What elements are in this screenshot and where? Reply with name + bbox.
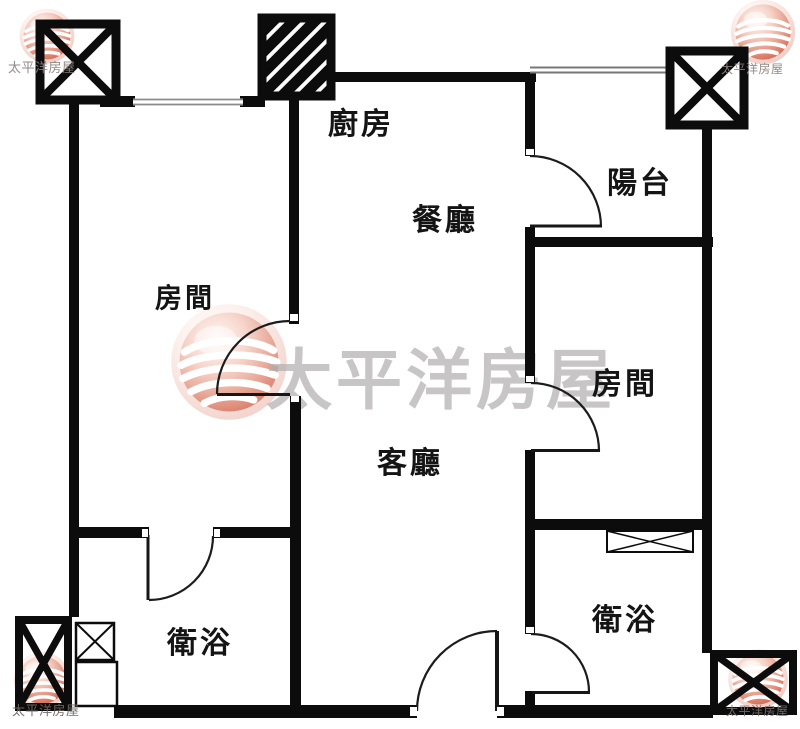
room-label-bathroom-left: 衛浴 <box>167 618 233 662</box>
room-label-dining: 餐廳 <box>412 195 478 239</box>
labels-layer: 廚房 陽台 餐廳 房間 房間 客廳 衛浴 衛浴 太平洋房屋 太平洋房屋 太平洋房… <box>0 0 800 729</box>
watermark-text-top-left: 太平洋房屋 <box>8 57 76 76</box>
room-label-living: 客廳 <box>377 438 443 482</box>
room-label-bedroom-left: 房間 <box>155 277 215 316</box>
watermark-text-bottom-left: 太平洋房屋 <box>12 700 80 719</box>
room-label-bedroom-right: 房間 <box>592 359 658 403</box>
watermark-text-top-right: 太平洋房屋 <box>721 60 784 77</box>
room-label-balcony: 陽台 <box>607 158 673 202</box>
room-label-bathroom-right: 衛浴 <box>592 595 658 639</box>
floorplan-page: 太平洋房屋 <box>0 0 800 729</box>
room-label-kitchen: 廚房 <box>328 99 394 143</box>
watermark-text-bottom-right: 太平洋房屋 <box>726 702 789 719</box>
